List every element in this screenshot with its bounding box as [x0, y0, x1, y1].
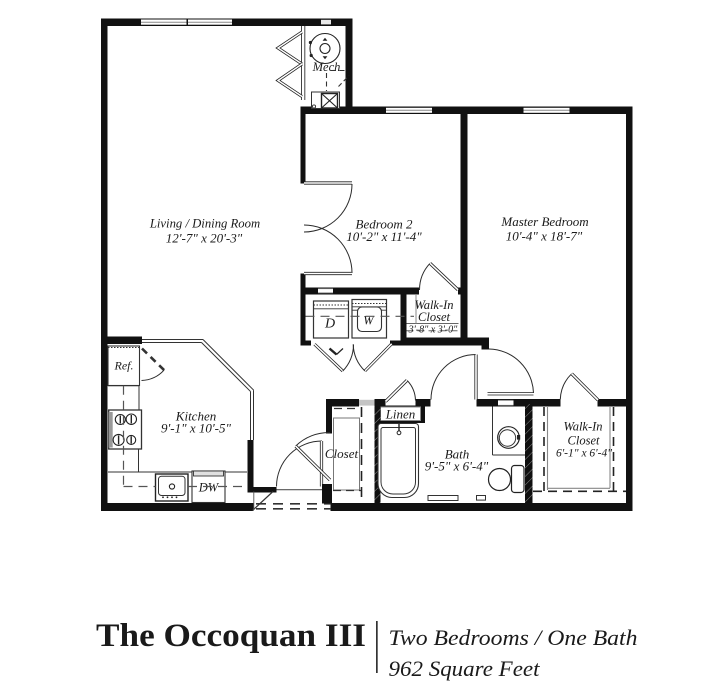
- svg-text:The Occoquan III: The Occoquan III: [96, 618, 366, 654]
- svg-text:Mech: Mech: [312, 60, 341, 74]
- svg-text:3'-8" x 3'-0": 3'-8" x 3'-0": [408, 325, 459, 336]
- svg-text:10'-4" x 18'-7": 10'-4" x 18'-7": [506, 229, 583, 244]
- svg-text:Closet: Closet: [568, 434, 600, 448]
- svg-text:Closet: Closet: [325, 446, 359, 461]
- svg-text:Master Bedroom: Master Bedroom: [500, 214, 588, 229]
- svg-text:10'-2" x 11'-4": 10'-2" x 11'-4": [346, 229, 422, 244]
- svg-text:9'-5" x 6'-4": 9'-5" x 6'-4": [425, 459, 489, 474]
- svg-text:12'-7" x 20'-3": 12'-7" x 20'-3": [166, 231, 243, 246]
- svg-text:6'-1" x 6'-4": 6'-1" x 6'-4": [556, 448, 612, 460]
- svg-text:Closet: Closet: [418, 310, 450, 324]
- svg-text:Linen: Linen: [385, 407, 416, 422]
- svg-text:Ref.: Ref.: [114, 359, 134, 373]
- svg-text:9'-1" x 10'-5": 9'-1" x 10'-5": [161, 421, 231, 436]
- svg-text:Two Bedrooms / One Bath: Two Bedrooms / One Bath: [389, 625, 638, 650]
- svg-text:Living / Dining Room: Living / Dining Room: [149, 217, 260, 231]
- svg-text:W: W: [363, 314, 375, 328]
- svg-text:962 Square Feet: 962 Square Feet: [389, 656, 541, 681]
- svg-text:D: D: [324, 317, 335, 332]
- svg-text:Walk-In: Walk-In: [563, 420, 602, 434]
- svg-text:DW: DW: [198, 481, 220, 495]
